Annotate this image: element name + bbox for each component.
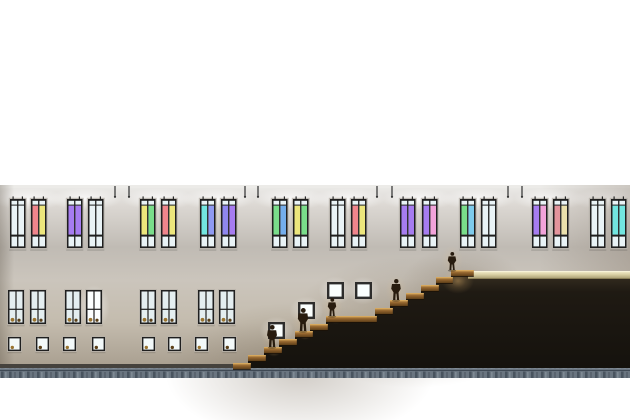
small-window bbox=[7, 336, 22, 353]
sill-object bbox=[143, 318, 147, 322]
stained-glass-window bbox=[350, 196, 368, 251]
sill-object bbox=[226, 346, 229, 349]
window-pane-left bbox=[534, 206, 540, 235]
window-pane-left bbox=[402, 206, 408, 235]
stained-glass-window bbox=[292, 196, 310, 251]
window-pane-right bbox=[338, 206, 344, 235]
window-pane-left bbox=[555, 206, 561, 235]
window-pane-right bbox=[598, 206, 604, 235]
stair-tread bbox=[421, 285, 439, 292]
stair-tread bbox=[375, 308, 393, 315]
window-pane-left bbox=[613, 206, 619, 235]
window-pane-right bbox=[96, 206, 102, 235]
window-pane-right bbox=[619, 206, 625, 235]
small-window bbox=[167, 336, 182, 353]
stained-glass-window bbox=[139, 196, 157, 251]
window-pane-left bbox=[274, 206, 280, 235]
stained-glass-window bbox=[589, 196, 607, 251]
stained-glass-window bbox=[30, 196, 48, 251]
window-pane-left bbox=[295, 206, 301, 235]
floor-plinth bbox=[0, 368, 630, 378]
grid-window bbox=[139, 289, 157, 326]
stained-glass-window bbox=[271, 196, 289, 251]
window-pane-right bbox=[280, 206, 286, 235]
sill-object bbox=[198, 346, 201, 349]
window-pane-left bbox=[163, 206, 169, 235]
sill-object bbox=[39, 319, 42, 322]
ceiling-light-glow bbox=[48, 188, 122, 210]
stair-tread bbox=[406, 293, 424, 300]
window-pane-left bbox=[69, 206, 75, 235]
sill-object bbox=[68, 318, 72, 322]
sill-object bbox=[228, 319, 231, 322]
ceiling-light-glow bbox=[311, 188, 385, 210]
stair-tread bbox=[233, 363, 251, 370]
sill-object bbox=[222, 318, 226, 322]
art-frame-canvas bbox=[357, 284, 369, 296]
sill-object bbox=[39, 346, 42, 349]
stair-tread bbox=[279, 339, 297, 346]
window-pane-right bbox=[75, 206, 81, 235]
window-pane-left bbox=[90, 206, 96, 235]
sill-object bbox=[95, 319, 98, 322]
architectural-section-render bbox=[0, 0, 630, 420]
stained-glass-window bbox=[459, 196, 477, 251]
sill-object bbox=[171, 346, 174, 349]
stained-glass-window bbox=[160, 196, 178, 251]
sill-object bbox=[145, 346, 148, 349]
window-pane-right bbox=[39, 206, 45, 235]
stained-glass-window bbox=[421, 196, 439, 251]
sill-object bbox=[33, 318, 37, 322]
sill-object bbox=[11, 318, 15, 322]
window-pane-right bbox=[229, 206, 235, 235]
stair-tread bbox=[310, 324, 328, 331]
ceiling-light-glow bbox=[181, 188, 255, 210]
sill-object bbox=[11, 346, 14, 349]
stained-glass-window bbox=[610, 196, 628, 251]
stained-glass-window bbox=[480, 196, 498, 251]
sill-object bbox=[164, 318, 168, 322]
window-pane-right bbox=[561, 206, 567, 235]
grid-window bbox=[218, 289, 236, 326]
render-canvas bbox=[0, 0, 630, 420]
window-pane-left bbox=[12, 206, 18, 235]
stained-glass-window bbox=[552, 196, 570, 251]
window-pane-right bbox=[359, 206, 365, 235]
stained-glass-window bbox=[199, 196, 217, 251]
sill-object bbox=[207, 319, 210, 322]
small-window bbox=[91, 336, 106, 353]
sill-object bbox=[66, 346, 69, 349]
grid-window bbox=[197, 289, 215, 326]
window-pane-left bbox=[202, 206, 208, 235]
stair-tread bbox=[248, 355, 266, 362]
grid-window bbox=[160, 289, 178, 326]
small-window bbox=[222, 336, 237, 353]
stair-tread bbox=[436, 277, 453, 284]
stained-glass-window bbox=[220, 196, 238, 251]
window-pane-right bbox=[408, 206, 414, 235]
grid-window-lit bbox=[78, 285, 110, 329]
ceiling-light-glow bbox=[441, 188, 515, 210]
window-pane-left bbox=[142, 206, 148, 235]
window-pane-right bbox=[208, 206, 214, 235]
sill-object bbox=[201, 318, 205, 322]
small-window bbox=[62, 336, 77, 353]
window-pane-right bbox=[430, 206, 436, 235]
window-pane-left bbox=[332, 206, 338, 235]
small-window bbox=[194, 336, 209, 353]
window-pane-right bbox=[18, 206, 24, 235]
window-pane-right bbox=[489, 206, 495, 235]
art-frame bbox=[347, 277, 381, 305]
plinth-highlight bbox=[0, 368, 630, 369]
window-pane-right bbox=[148, 206, 154, 235]
window-pane-right bbox=[468, 206, 474, 235]
sill-object bbox=[74, 319, 77, 322]
art-frame-canvas bbox=[329, 284, 341, 296]
window-pane-left bbox=[462, 206, 468, 235]
small-window bbox=[35, 336, 50, 353]
window-pane-left bbox=[223, 206, 229, 235]
grid-window bbox=[29, 289, 47, 326]
sill-object bbox=[89, 318, 93, 322]
small-window bbox=[141, 336, 156, 353]
window-pane-right bbox=[169, 206, 175, 235]
sill-object bbox=[149, 319, 152, 322]
window-pane-left bbox=[33, 206, 39, 235]
window-pane-left bbox=[353, 206, 359, 235]
upper-floor-edge bbox=[468, 271, 630, 279]
window-pane-left bbox=[424, 206, 430, 235]
window-pane-left bbox=[592, 206, 598, 235]
stained-glass-window bbox=[399, 196, 417, 251]
grid-window bbox=[7, 289, 25, 326]
stained-glass-window bbox=[9, 196, 27, 251]
stained-glass-window bbox=[329, 196, 347, 251]
stained-glass-window bbox=[87, 196, 105, 251]
sill-object bbox=[170, 319, 173, 322]
window-pane-right bbox=[540, 206, 546, 235]
sill-object bbox=[17, 319, 20, 322]
window-pane-left bbox=[483, 206, 489, 235]
window-pane-right bbox=[301, 206, 307, 235]
stained-glass-window bbox=[531, 196, 549, 251]
sill-object bbox=[95, 346, 98, 349]
stained-glass-window bbox=[66, 196, 84, 251]
ceiling-edge bbox=[0, 185, 630, 188]
